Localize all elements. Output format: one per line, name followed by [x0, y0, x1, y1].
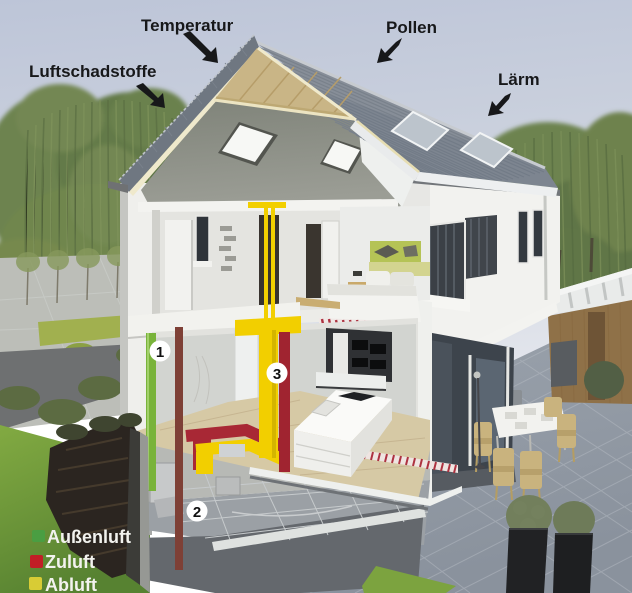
svg-text:3: 3	[273, 366, 281, 383]
svg-text:Abluft: Abluft	[45, 575, 97, 593]
svg-text:1: 1	[156, 344, 164, 361]
svg-text:Luftschadstoffe: Luftschadstoffe	[29, 62, 157, 81]
svg-text:Außenluft: Außenluft	[47, 527, 131, 547]
svg-text:Lärm: Lärm	[498, 70, 540, 89]
svg-text:2: 2	[193, 504, 201, 521]
svg-text:Zuluft: Zuluft	[45, 552, 95, 572]
svg-text:Pollen: Pollen	[386, 18, 437, 37]
